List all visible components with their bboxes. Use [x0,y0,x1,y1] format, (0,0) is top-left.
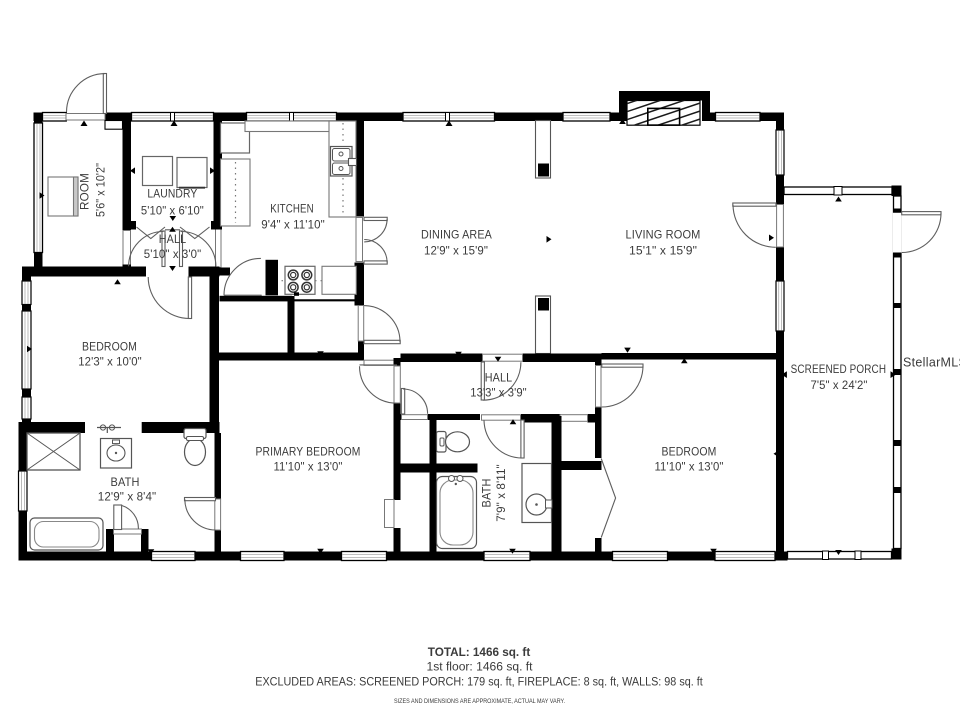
svg-text:EXCLUDED AREAS: SCREENED PORCH: EXCLUDED AREAS: SCREENED PORCH: 179 sq. … [255,675,703,689]
svg-text:HALL: HALL [485,371,513,385]
svg-text:LAUNDRY: LAUNDRY [147,187,197,201]
svg-text:5'10" x 6'10": 5'10" x 6'10" [141,204,204,218]
svg-text:12'9" x 15'9": 12'9" x 15'9" [424,244,488,258]
svg-text:7'9" x 8'11": 7'9" x 8'11" [494,464,508,522]
svg-text:15'1" x 15'9": 15'1" x 15'9" [629,244,697,258]
svg-text:StellarMLS: StellarMLS [903,356,960,370]
svg-text:DINING AREA: DINING AREA [421,228,492,242]
svg-text:ROOM: ROOM [78,173,92,210]
svg-text:BATH: BATH [111,475,140,489]
svg-text:5'6" x 10'2": 5'6" x 10'2" [94,163,108,217]
svg-text:LIVING ROOM: LIVING ROOM [626,228,701,242]
svg-text:11'10" x 13'0": 11'10" x 13'0" [274,460,343,474]
svg-text:BEDROOM: BEDROOM [82,340,137,354]
svg-text:9'4" x 11'10": 9'4" x 11'10" [261,218,325,232]
svg-text:1st floor: 1466 sq. ft: 1st floor: 1466 sq. ft [427,660,534,674]
svg-text:5'10" x 3'0": 5'10" x 3'0" [144,247,202,261]
svg-text:SIZES AND DIMENSIONS ARE APPRO: SIZES AND DIMENSIONS ARE APPROXIMATE, AC… [394,698,565,705]
svg-text:13'3" x 3'9": 13'3" x 3'9" [470,386,527,400]
svg-text:SCREENED PORCH: SCREENED PORCH [791,362,887,376]
svg-text:12'9" x 8'4": 12'9" x 8'4" [98,490,157,504]
svg-text:TOTAL: 1466 sq. ft: TOTAL: 1466 sq. ft [428,645,531,659]
svg-text:KITCHEN: KITCHEN [270,202,314,216]
svg-text:7'5" x 24'2": 7'5" x 24'2" [811,378,868,392]
svg-text:BATH: BATH [480,479,494,508]
svg-text:HALL: HALL [159,232,187,246]
svg-text:11'10" x 13'0": 11'10" x 13'0" [655,460,724,474]
svg-text:12'3" x 10'0": 12'3" x 10'0" [78,355,142,369]
svg-text:PRIMARY BEDROOM: PRIMARY BEDROOM [256,445,361,459]
svg-text:BEDROOM: BEDROOM [662,445,717,459]
